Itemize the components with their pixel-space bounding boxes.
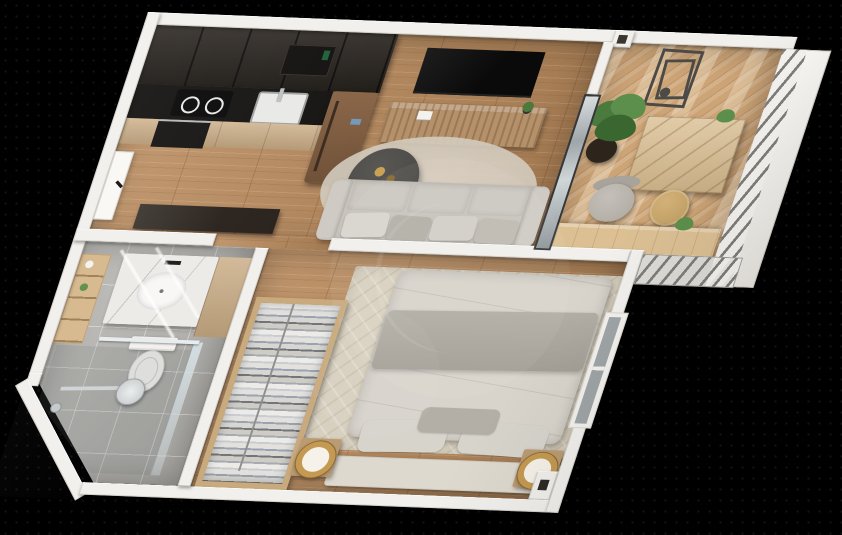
apartment-plan [0, 12, 842, 523]
door-handle-icon [115, 180, 123, 188]
seat-cushion [346, 181, 413, 212]
microwave-display [321, 50, 330, 60]
oven [150, 119, 211, 149]
shelf-plant-icon [79, 283, 89, 291]
hall-console-desk [132, 204, 280, 234]
back-pillow [384, 215, 433, 242]
wardrobe-rail-icon [238, 304, 295, 471]
render-canvas [0, 0, 842, 535]
sofa [314, 179, 552, 248]
kitchen-sink [249, 91, 310, 125]
books-decor [416, 111, 433, 120]
towel-roll [84, 260, 94, 268]
seat-cushion [466, 186, 531, 217]
burner-right [202, 97, 226, 115]
kitchen-upper-cabinets [138, 25, 399, 93]
back-pillow [427, 216, 479, 241]
shower-arm-icon [60, 386, 120, 390]
shaft-opening [537, 480, 549, 491]
bed-throw [370, 310, 599, 372]
back-pillow [340, 212, 391, 237]
railing-south [633, 254, 743, 288]
wall-tv [413, 48, 546, 98]
microwave [279, 44, 337, 76]
column-opening [616, 35, 628, 44]
induction-hob [170, 89, 235, 118]
burner-left [179, 96, 203, 114]
fridge-magnets [350, 119, 362, 125]
bed-pillow-small [416, 407, 502, 435]
cup-gold [373, 167, 386, 177]
seat-cushion [406, 184, 473, 215]
